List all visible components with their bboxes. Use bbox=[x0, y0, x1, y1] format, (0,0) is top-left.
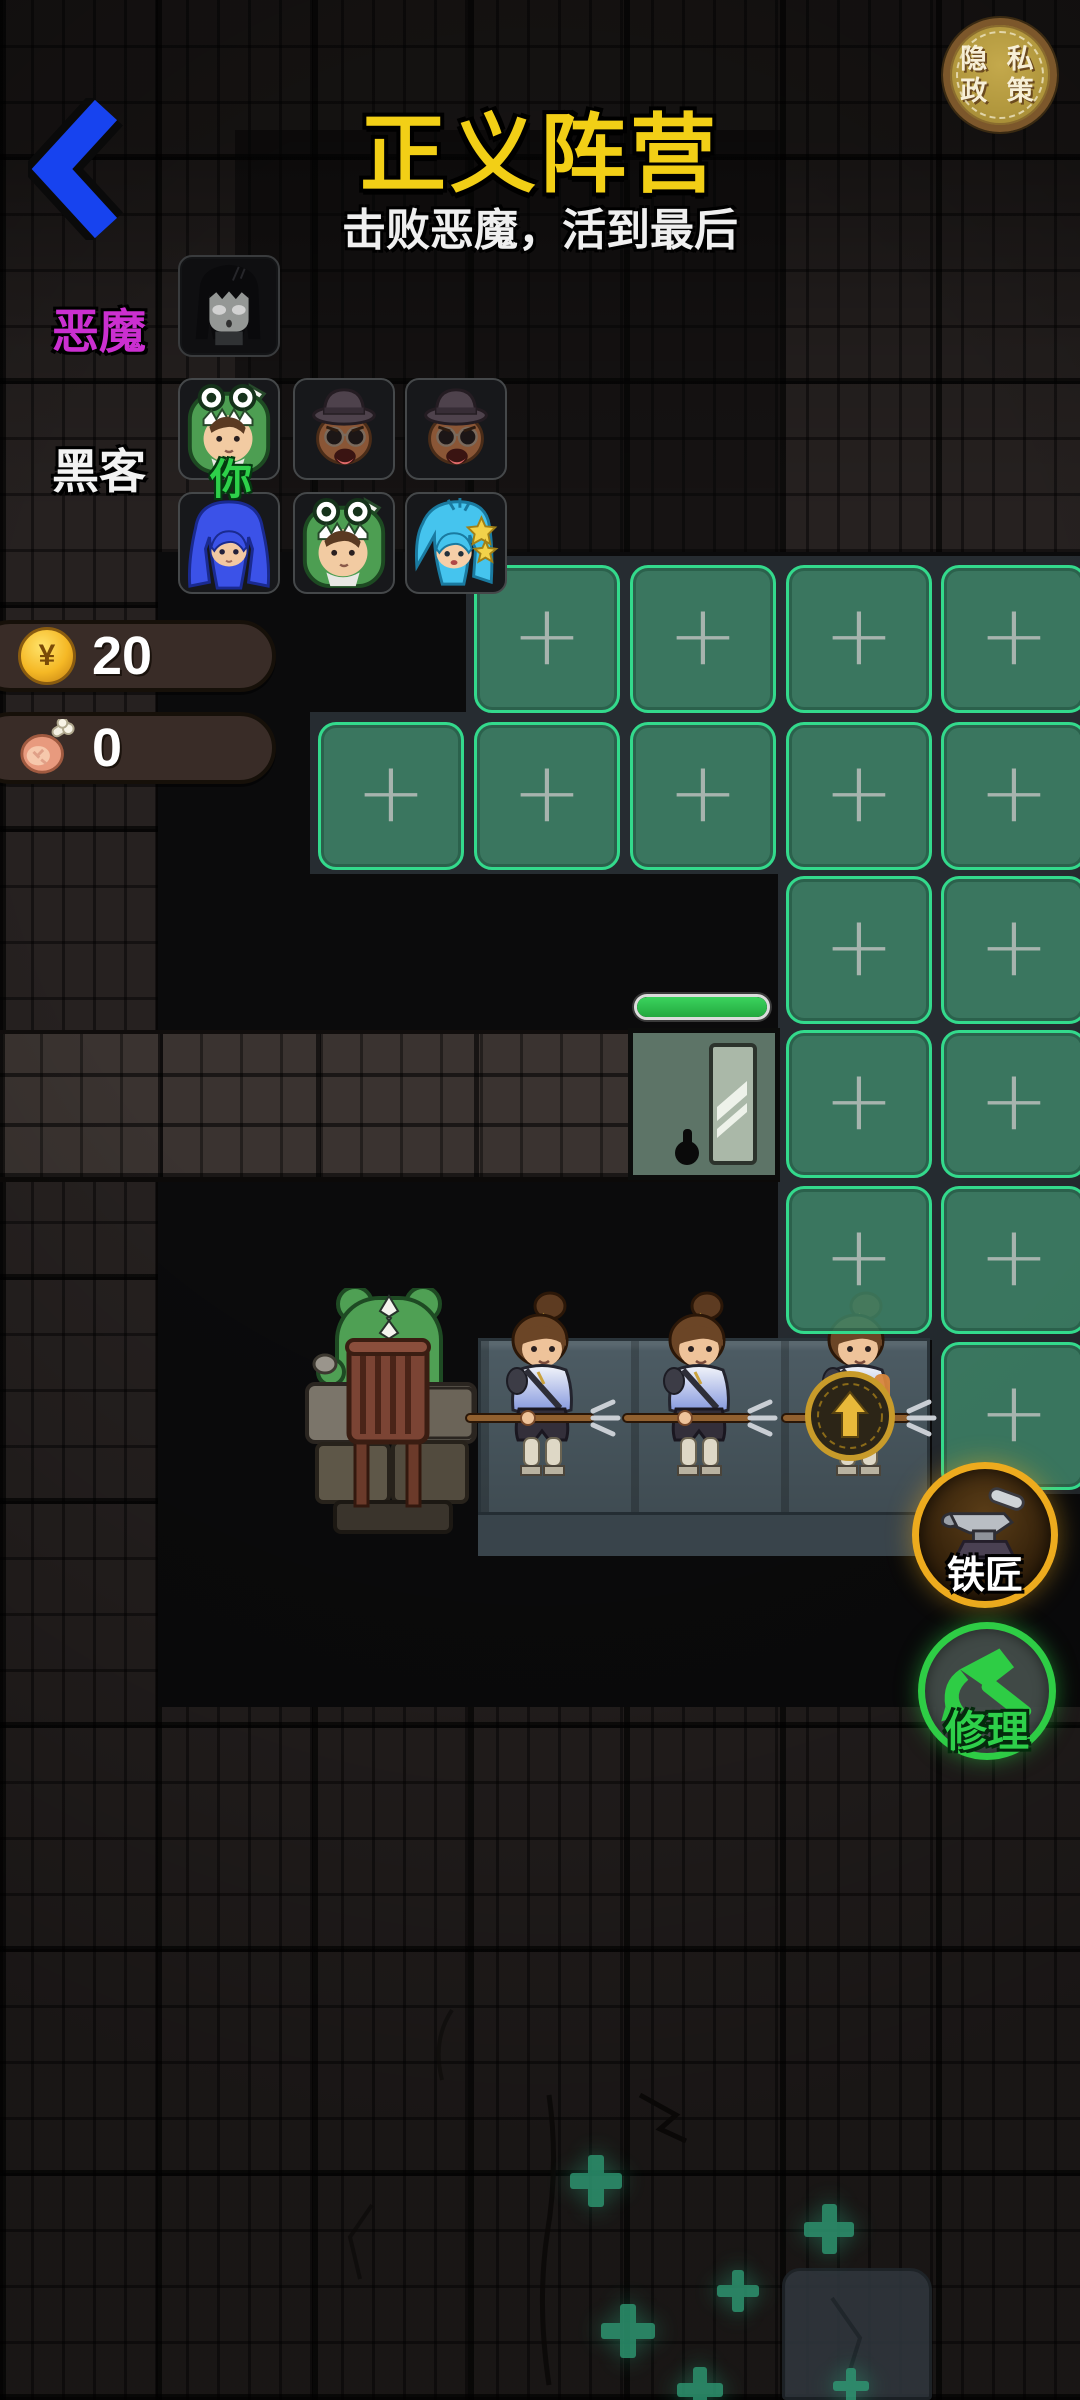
gold-amount: 20 bbox=[92, 625, 152, 687]
empty-slot-r2c3[interactable]: + bbox=[630, 722, 776, 870]
glow-plus-decal-2 bbox=[804, 2204, 854, 2254]
avatar-frog-hood-girl-2[interactable] bbox=[293, 492, 395, 594]
glow-plus-decal-5 bbox=[677, 2367, 723, 2400]
frog-boss-on-chair[interactable] bbox=[303, 1288, 481, 1536]
empty-slot-r1c5[interactable]: + bbox=[941, 565, 1080, 713]
avatar-top-hat-man-2[interactable] bbox=[405, 378, 507, 480]
gate-health-bar bbox=[634, 994, 770, 1020]
empty-slot-r2c2[interactable]: + bbox=[474, 722, 620, 870]
avatar-blue-twintail-girl[interactable] bbox=[178, 492, 280, 594]
food-resource-pill: 0 bbox=[0, 712, 276, 784]
add-unit-plus-icon: + bbox=[356, 750, 426, 834]
unit-spearman-2[interactable] bbox=[619, 1288, 779, 1508]
empty-slot-r1c4[interactable]: + bbox=[786, 565, 932, 713]
add-unit-plus-icon: + bbox=[668, 750, 738, 834]
avatar-cyan-star-girl[interactable] bbox=[405, 492, 507, 594]
glow-plus-decal-1 bbox=[570, 2155, 622, 2207]
page-title: 正义阵营 bbox=[0, 84, 1080, 209]
hacker-team-label: 黑客 bbox=[24, 433, 174, 502]
add-unit-plus-icon: + bbox=[824, 593, 894, 677]
blacksmith-label: 铁匠 bbox=[919, 1544, 1051, 1599]
you-badge: 你 bbox=[196, 446, 266, 507]
avatar-top-hat-man-1[interactable] bbox=[293, 378, 395, 480]
empty-slot-r4c5[interactable]: + bbox=[941, 1030, 1080, 1178]
repair-label: 修理 bbox=[925, 1698, 1049, 1759]
add-unit-plus-icon: + bbox=[979, 593, 1049, 677]
demon-team-label: 恶魔 bbox=[24, 293, 174, 362]
empty-slot-r2c5[interactable]: + bbox=[941, 722, 1080, 870]
frog-hood-girl-icon bbox=[297, 496, 391, 590]
glow-plus-decal-3 bbox=[717, 2270, 759, 2312]
add-unit-plus-icon: + bbox=[979, 904, 1049, 988]
dark-ghost-girl-icon bbox=[182, 259, 276, 353]
add-unit-plus-icon: + bbox=[979, 1370, 1049, 1454]
gate-health-fill bbox=[637, 997, 767, 1017]
top-hat-shades-man-icon bbox=[409, 382, 503, 476]
food-amount: 0 bbox=[92, 717, 122, 779]
game-screen: ++++++++++++++++ 正义阵营 击败恶魔，活到最后 隐 私 政 策 … bbox=[0, 0, 1080, 2400]
back-button[interactable] bbox=[28, 98, 132, 240]
blue-twintail-girl-icon bbox=[182, 496, 276, 590]
repair-button[interactable]: 修理 bbox=[918, 1622, 1056, 1760]
empty-slot-r5c4[interactable]: + bbox=[786, 1186, 932, 1334]
gold-resource-pill: ¥ 20 bbox=[0, 620, 276, 692]
defense-platform-base bbox=[478, 1512, 930, 1556]
back-chevron-icon bbox=[28, 98, 132, 240]
gate-door[interactable] bbox=[628, 1028, 780, 1180]
empty-slot-r2c4[interactable]: + bbox=[786, 722, 932, 870]
add-unit-plus-icon: + bbox=[824, 1058, 894, 1142]
add-unit-plus-icon: + bbox=[979, 750, 1049, 834]
add-unit-plus-icon: + bbox=[668, 593, 738, 677]
empty-slot-r3c4[interactable]: + bbox=[786, 876, 932, 1024]
top-hat-shades-man-icon bbox=[297, 382, 391, 476]
add-unit-plus-icon: + bbox=[512, 750, 582, 834]
privacy-dashed-ring bbox=[956, 31, 1044, 119]
avatar-demon-dark-ghost-girl[interactable] bbox=[178, 255, 280, 357]
empty-slot-r2c1[interactable]: + bbox=[318, 722, 464, 870]
gold-coin-icon: ¥ bbox=[18, 627, 76, 685]
blacksmith-button[interactable]: 铁匠 bbox=[912, 1462, 1058, 1608]
add-unit-plus-icon: + bbox=[824, 1214, 894, 1298]
unit-spearman-1[interactable] bbox=[462, 1288, 622, 1508]
empty-slot-r3c5[interactable]: + bbox=[941, 876, 1080, 1024]
empty-slot-r5c5[interactable]: + bbox=[941, 1186, 1080, 1334]
add-unit-plus-icon: + bbox=[824, 904, 894, 988]
add-unit-plus-icon: + bbox=[512, 593, 582, 677]
glow-plus-decal-6 bbox=[833, 2368, 869, 2400]
glow-plus-decal-4 bbox=[601, 2304, 655, 2358]
empty-slot-r4c4[interactable]: + bbox=[786, 1030, 932, 1178]
add-unit-plus-icon: + bbox=[824, 750, 894, 834]
add-unit-plus-icon: + bbox=[979, 1058, 1049, 1142]
add-unit-plus-icon: + bbox=[979, 1214, 1049, 1298]
meat-icon bbox=[18, 719, 76, 777]
cyan-star-girl-icon bbox=[409, 496, 503, 590]
page-subtitle: 击败恶魔，活到最后 bbox=[0, 194, 1080, 258]
empty-slot-r1c3[interactable]: + bbox=[630, 565, 776, 713]
privacy-policy-button[interactable]: 隐 私 政 策 bbox=[943, 18, 1057, 132]
